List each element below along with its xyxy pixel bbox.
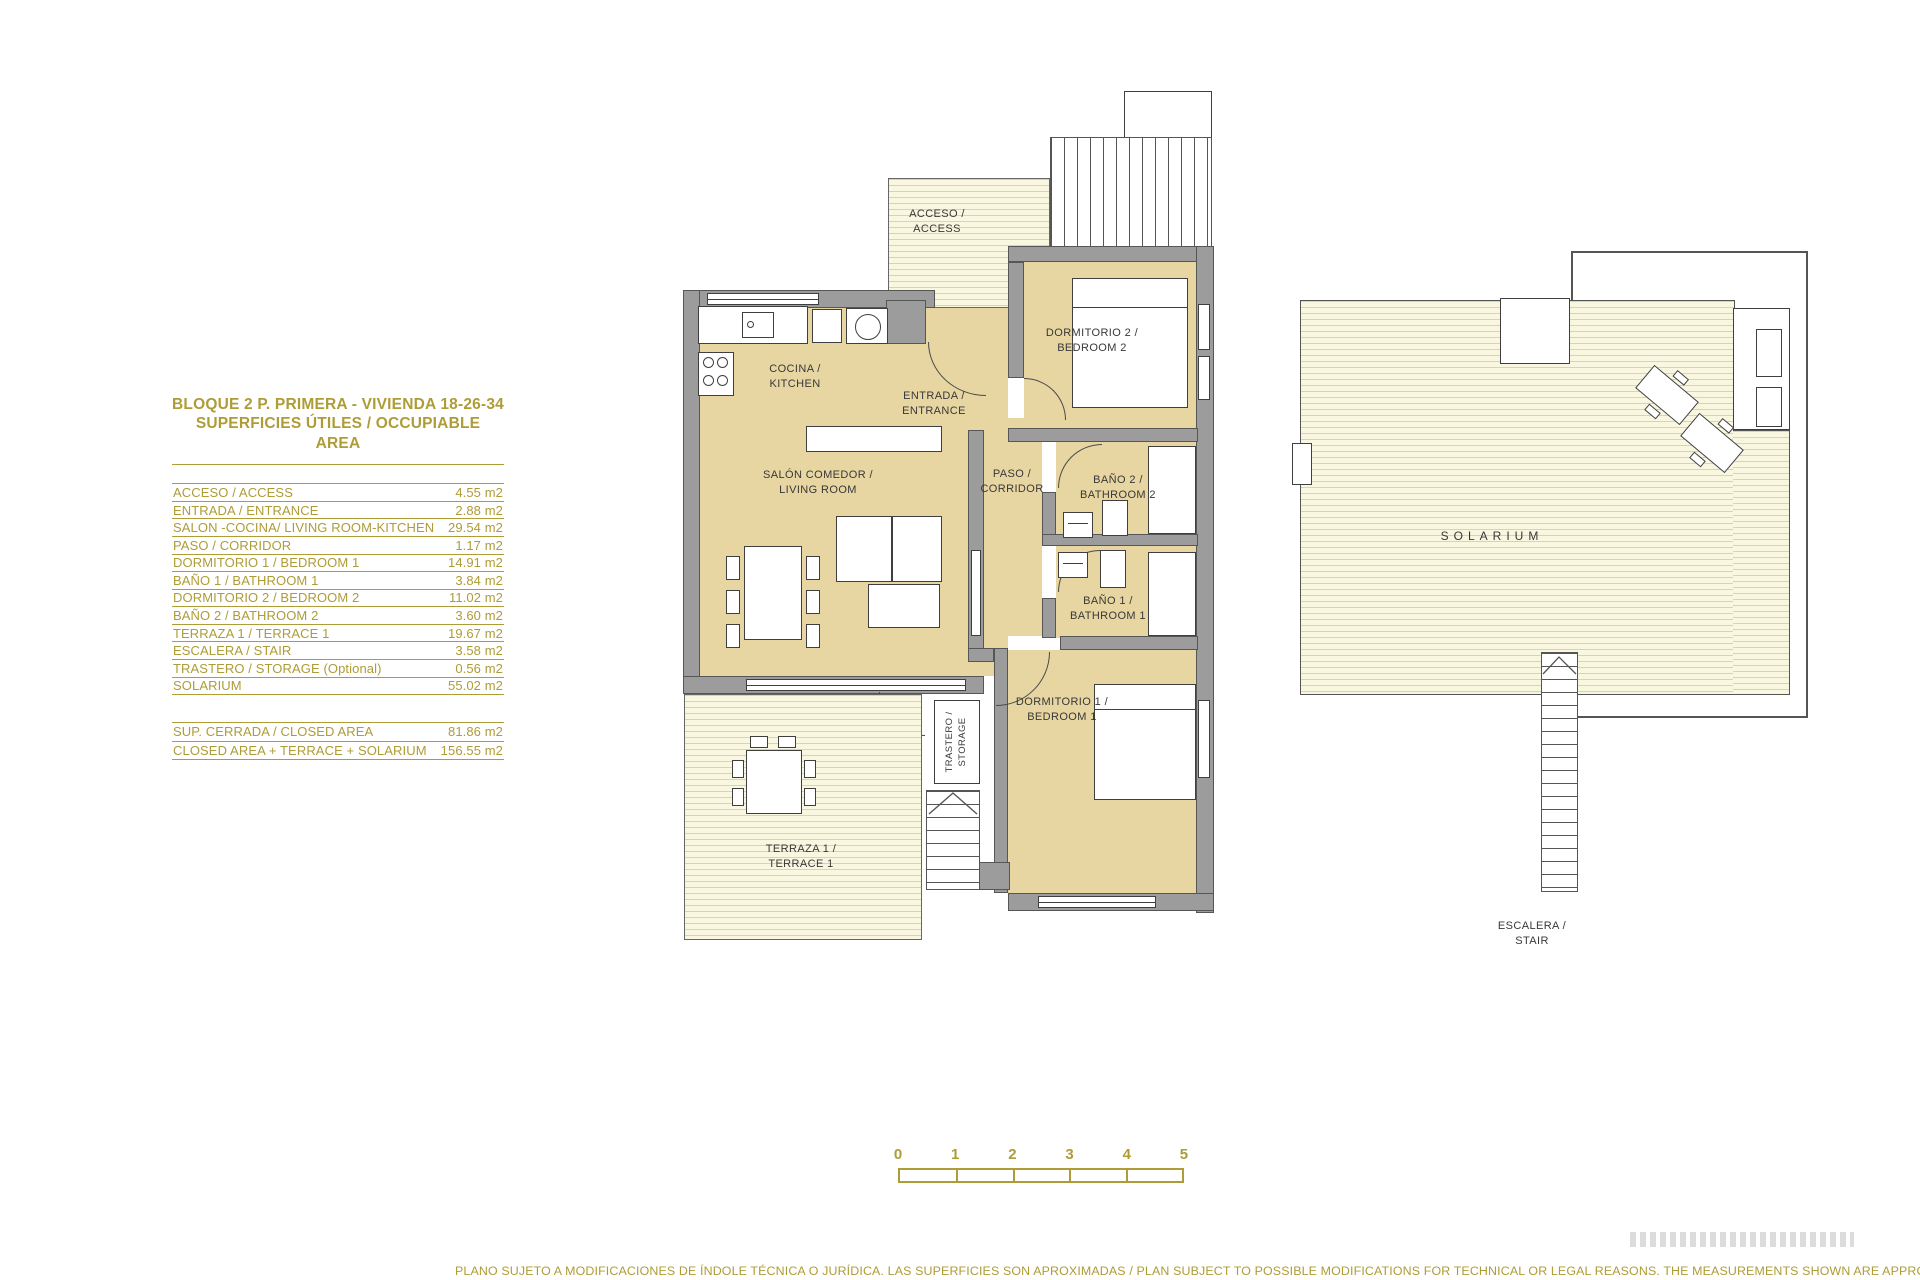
label-bedroom1: DORMITORIO 1 /BEDROOM 1 <box>1016 695 1108 725</box>
boundary-line <box>1571 251 1573 300</box>
disclaimer-text: PLANO SUJETO A MODIFICACIONES DE ÍNDOLE … <box>455 1264 1920 1278</box>
scale-tick: 0 <box>891 1146 905 1163</box>
label-bedroom2: DORMITORIO 2 /BEDROOM 2 <box>1046 326 1138 356</box>
roof-equipment-bay <box>1733 308 1790 430</box>
scale-divider <box>956 1170 958 1181</box>
label-entrance: ENTRADA /ENTRANCE <box>902 389 966 419</box>
boundary-line <box>1571 251 1808 253</box>
label-solarium: SOLARIUM <box>1441 528 1544 544</box>
scale-tick: 4 <box>1120 1146 1134 1163</box>
boundary-line <box>1806 251 1808 716</box>
scale-divider <box>1013 1170 1015 1181</box>
label-bathroom1: BAÑO 1 /BATHROOM 1 <box>1070 594 1146 624</box>
floor-plan-solarium <box>0 0 1920 1280</box>
label-corridor: PASO /CORRIDOR <box>980 467 1043 497</box>
solarium-stair <box>1541 652 1578 892</box>
scale-tick-numbers: 012345 <box>898 1146 1184 1163</box>
faded-watermark <box>1630 1232 1854 1247</box>
scale-tick: 5 <box>1177 1146 1191 1163</box>
label-living-room: SALÓN COMEDOR /LIVING ROOM <box>763 468 873 498</box>
stair-direction-icon <box>1541 654 1578 676</box>
scale-tick: 3 <box>1063 1146 1077 1163</box>
label-bathroom2: BAÑO 2 /BATHROOM 2 <box>1080 473 1156 503</box>
floorplan-page: BLOQUE 2 P. PRIMERA - VIVIENDA 18-26-34 … <box>0 0 1920 1280</box>
scale-bar: 012345 <box>898 1146 1184 1183</box>
roof-notch <box>1500 298 1570 364</box>
label-kitchen: COCINA /KITCHEN <box>769 362 821 392</box>
solarium-access-hatch <box>1292 443 1312 485</box>
label-storage: TRASTERO /STORAGE <box>944 711 970 772</box>
scale-divider <box>1069 1170 1071 1181</box>
scale-bar-rule <box>898 1168 1184 1183</box>
boundary-line <box>1578 716 1808 718</box>
scale-tick: 1 <box>948 1146 962 1163</box>
scale-divider <box>1126 1170 1128 1181</box>
label-terrace: TERRAZA 1 /TERRACE 1 <box>766 842 836 872</box>
label-access: ACCESO /ACCESS <box>909 207 965 237</box>
scale-tick: 2 <box>1005 1146 1019 1163</box>
label-stair: ESCALERA /STAIR <box>1498 919 1566 949</box>
solarium-area-extension <box>1733 430 1790 695</box>
